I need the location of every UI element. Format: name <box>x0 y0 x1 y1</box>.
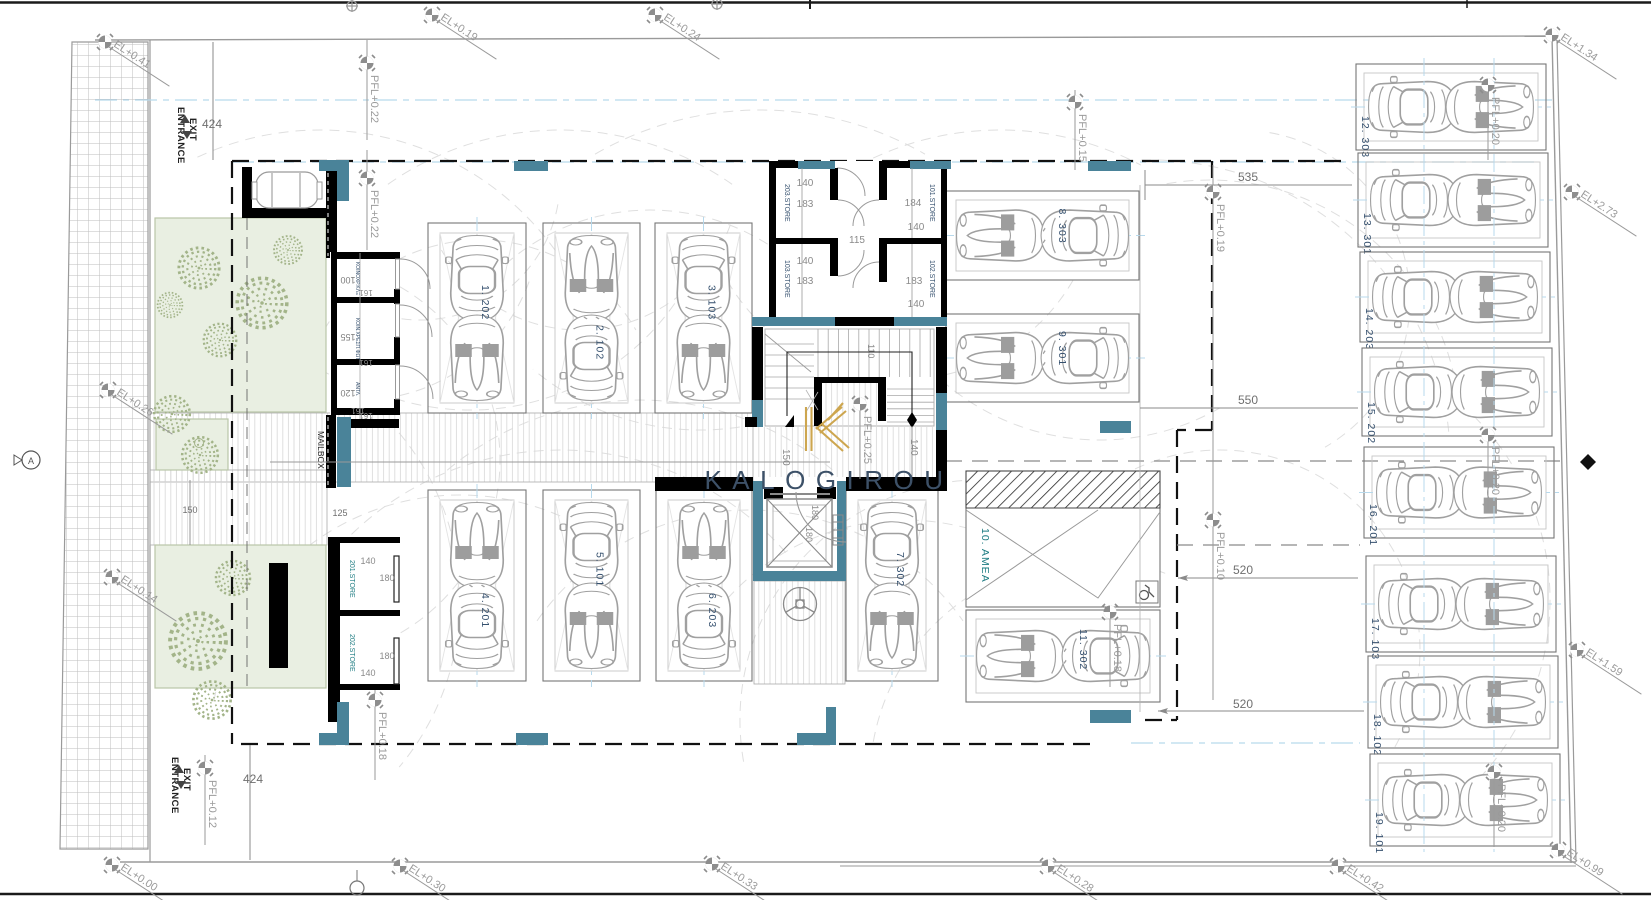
svg-text:424: 424 <box>202 117 222 131</box>
svg-text:ΚΟΙΝ.ΧΡΕΣΠ.ΦΩΤ: ΚΟΙΝ.ΧΡΕΣΠ.ΦΩΤ <box>354 318 360 360</box>
svg-text:161: 161 <box>359 288 373 297</box>
svg-text:12. 303: 12. 303 <box>1359 116 1371 158</box>
svg-text:15. 202: 15. 202 <box>1365 402 1377 444</box>
svg-text:16. 201: 16. 201 <box>1367 504 1379 546</box>
svg-text:ENTRANCE: ENTRANCE <box>175 107 186 164</box>
svg-text:140: 140 <box>797 256 814 267</box>
svg-text:140: 140 <box>908 222 925 233</box>
svg-text:2. 102: 2. 102 <box>594 325 606 360</box>
svg-text:102.STORE: 102.STORE <box>928 260 935 298</box>
svg-text:101.STORE: 101.STORE <box>928 184 935 222</box>
svg-text:5. 101: 5. 101 <box>594 552 606 587</box>
svg-text:PFL+0.20: PFL+0.20 <box>1489 447 1501 495</box>
svg-text:103.STORE: 103.STORE <box>783 260 790 298</box>
svg-text:183: 183 <box>797 276 814 287</box>
svg-text:115: 115 <box>849 235 865 246</box>
svg-text:PFL+0.18: PFL+0.18 <box>1111 624 1123 672</box>
svg-text:17. 103: 17. 103 <box>1369 618 1381 660</box>
svg-text:125: 125 <box>332 508 347 518</box>
svg-text:14. 203: 14. 203 <box>1363 308 1375 350</box>
svg-text:PFL+0.20: PFL+0.20 <box>1489 97 1501 145</box>
svg-text:ΚΟΙΝΟΧΡ.ΚΛΞ: ΚΟΙΝΟΧΡ.ΚΛΞ <box>354 262 360 296</box>
svg-text:A: A <box>28 456 34 466</box>
svg-text:PFL+0.25: PFL+0.25 <box>861 416 873 464</box>
svg-text:202.STORE: 202.STORE <box>348 634 355 672</box>
svg-text:KALOGIROU: KALOGIROU <box>704 465 953 495</box>
svg-text:10. AMEA: 10. AMEA <box>979 528 991 583</box>
svg-text:155: 155 <box>340 332 355 342</box>
svg-text:140: 140 <box>797 178 814 189</box>
svg-text:PFL+0.22: PFL+0.22 <box>368 75 380 123</box>
svg-text:150: 150 <box>780 449 791 466</box>
svg-text:183: 183 <box>797 199 814 210</box>
svg-text:PFL+0.22: PFL+0.22 <box>368 190 380 238</box>
svg-text:140: 140 <box>360 556 375 566</box>
svg-text:ΑΝΤΛ.: ΑΝΤΛ. <box>354 382 360 396</box>
svg-text:PFL+0.10: PFL+0.10 <box>1214 532 1226 580</box>
svg-text:18. 102: 18. 102 <box>1371 714 1383 756</box>
svg-text:100: 100 <box>340 275 355 285</box>
svg-text:203.STORE: 203.STORE <box>783 184 790 222</box>
svg-text:19. 101: 19. 101 <box>1373 812 1385 854</box>
svg-text:11. 302: 11. 302 <box>1077 629 1089 670</box>
svg-text:8. 303: 8. 303 <box>1056 209 1068 244</box>
svg-text:184: 184 <box>905 198 922 209</box>
svg-text:550: 550 <box>1238 393 1258 407</box>
svg-text:520: 520 <box>1233 697 1253 711</box>
svg-text:PFL+0.12: PFL+0.12 <box>206 780 218 828</box>
svg-text:161: 161 <box>359 358 373 367</box>
svg-text:13. 301: 13. 301 <box>1361 213 1373 255</box>
svg-text:180: 180 <box>379 573 394 583</box>
svg-text:535: 535 <box>1238 170 1258 184</box>
svg-text:1. 202: 1. 202 <box>479 285 491 320</box>
svg-text:4. 201: 4. 201 <box>479 593 491 628</box>
svg-text:424: 424 <box>243 772 263 786</box>
svg-text:180: 180 <box>810 505 820 520</box>
svg-text:140: 140 <box>908 439 919 456</box>
svg-text:9. 301: 9. 301 <box>1056 331 1068 366</box>
svg-text:PFL+0.19: PFL+0.19 <box>1214 204 1226 252</box>
svg-text:3. 103: 3. 103 <box>706 285 718 320</box>
svg-text:PFL+0.15: PFL+0.15 <box>1076 114 1088 162</box>
svg-text:201.STORE: 201.STORE <box>348 560 355 598</box>
svg-text:PFL+0.20: PFL+0.20 <box>1495 784 1507 832</box>
svg-text:MAILBOX: MAILBOX <box>316 431 326 469</box>
svg-text:7. 302: 7. 302 <box>894 552 906 587</box>
svg-text:180: 180 <box>379 651 394 661</box>
svg-text:ENTRANCE: ENTRANCE <box>169 757 180 814</box>
svg-text:520: 520 <box>1233 563 1253 577</box>
svg-text:140: 140 <box>360 668 375 678</box>
svg-text:PFL+0.18: PFL+0.18 <box>376 712 388 760</box>
svg-text:161: 161 <box>351 406 365 415</box>
svg-text:6. 203: 6. 203 <box>706 593 718 628</box>
svg-text:140: 140 <box>908 299 925 310</box>
svg-text:120: 120 <box>340 388 355 398</box>
svg-text:183: 183 <box>906 276 923 287</box>
svg-text:110: 110 <box>866 344 876 358</box>
